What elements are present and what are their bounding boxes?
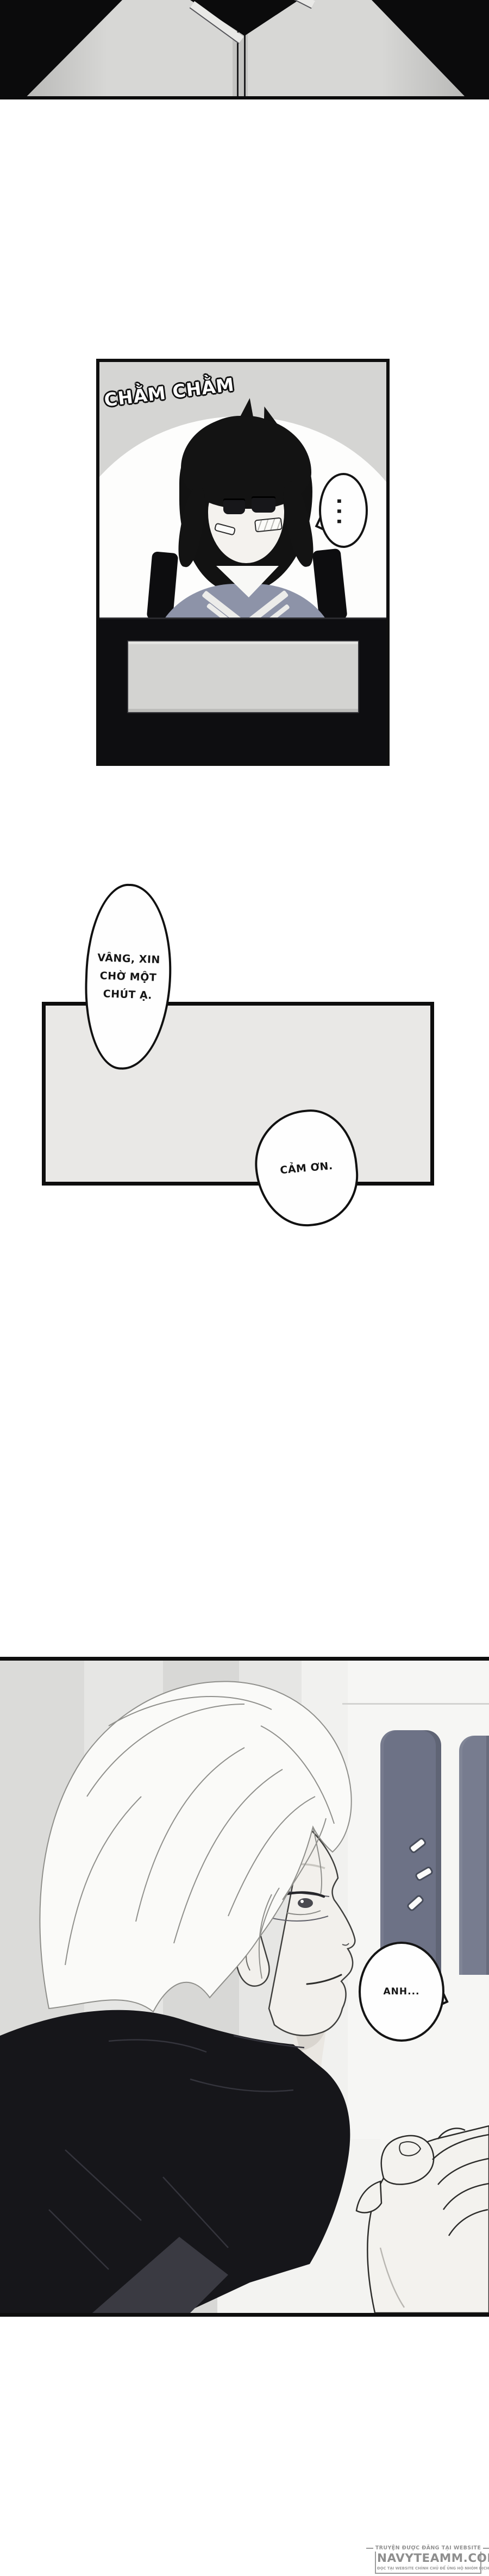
watermark-tagline: TRUYỆN ĐƯỢC ĐĂNG TẠI WEBSITE bbox=[375, 2545, 481, 2551]
comic-page: CHẰM CHẰM ... VÂNG, XIN CHỜ MỘT CH bbox=[0, 0, 489, 2576]
watermark-tagline-row: TRUYỆN ĐƯỢC ĐĂNG TẠI WEBSITE bbox=[375, 2545, 481, 2551]
watermark-site-name: NAVYTEAMM.COM bbox=[377, 2552, 479, 2565]
dash-line bbox=[366, 2548, 373, 2549]
boy-right-eye bbox=[252, 498, 275, 513]
eye-iris bbox=[298, 1898, 313, 1908]
speech-bubble-anh: ANH... bbox=[359, 1942, 444, 2042]
boy-left-eye bbox=[223, 500, 245, 514]
ellipsis-text: ... bbox=[334, 497, 353, 528]
bubble-wait-line: VÂNG, XIN bbox=[97, 949, 161, 969]
speech-bubble-ellipsis: ... bbox=[319, 473, 368, 548]
finger-tip bbox=[356, 2181, 381, 2213]
jacket-seam-line bbox=[244, 32, 246, 96]
dash-line bbox=[483, 2548, 489, 2549]
watermark-note: ĐỌC TẠI WEBSITE CHÍNH CHỦ ĐỂ ỦNG HỘ NHÓM… bbox=[377, 2566, 479, 2571]
panel-top-partial bbox=[0, 0, 489, 99]
sfx-stare-text: CHẰM CHẰM bbox=[103, 373, 236, 410]
bubble-wait-line: CHỜ MỘT bbox=[97, 966, 160, 987]
bubble-thanks-text: CẢM ƠN. bbox=[280, 1160, 334, 1176]
bubble-wait-line: CHÚT Ạ. bbox=[96, 984, 160, 1005]
panel-stare: CHẰM CHẰM ... bbox=[96, 359, 390, 766]
panel-closeup: ANH... bbox=[0, 1657, 489, 2317]
watermark-box: TRUYỆN ĐƯỢC ĐĂNG TẠI WEBSITE NAVYTEAMM.C… bbox=[375, 2545, 481, 2574]
desk-front-panel bbox=[127, 640, 359, 713]
bubble-anh-text: ANH... bbox=[384, 1986, 420, 1997]
watermark-site-box: NAVYTEAMM.COM ĐỌC TẠI WEBSITE CHÍNH CHỦ … bbox=[375, 2552, 481, 2574]
eye-highlight bbox=[300, 1900, 304, 1903]
